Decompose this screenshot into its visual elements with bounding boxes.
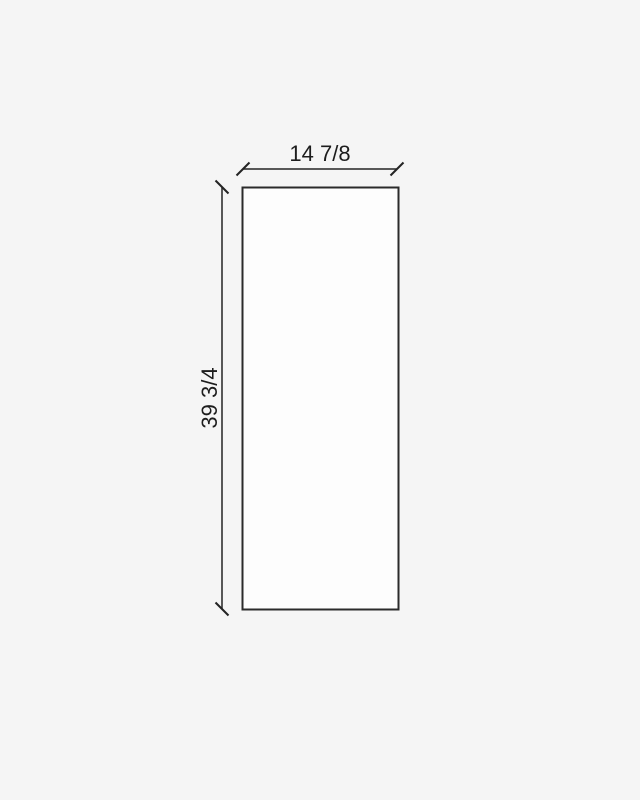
panel-rectangle: [243, 188, 399, 610]
width-dimension: 14 7/8: [237, 141, 404, 176]
height-dimension: 39 3/4: [197, 181, 229, 616]
panel-dimension-drawing: 14 7/8 39 3/4: [0, 0, 640, 800]
width-dimension-label: 14 7/8: [289, 141, 350, 166]
drawing-canvas: 14 7/8 39 3/4: [0, 0, 640, 800]
height-dimension-label: 39 3/4: [197, 367, 222, 428]
